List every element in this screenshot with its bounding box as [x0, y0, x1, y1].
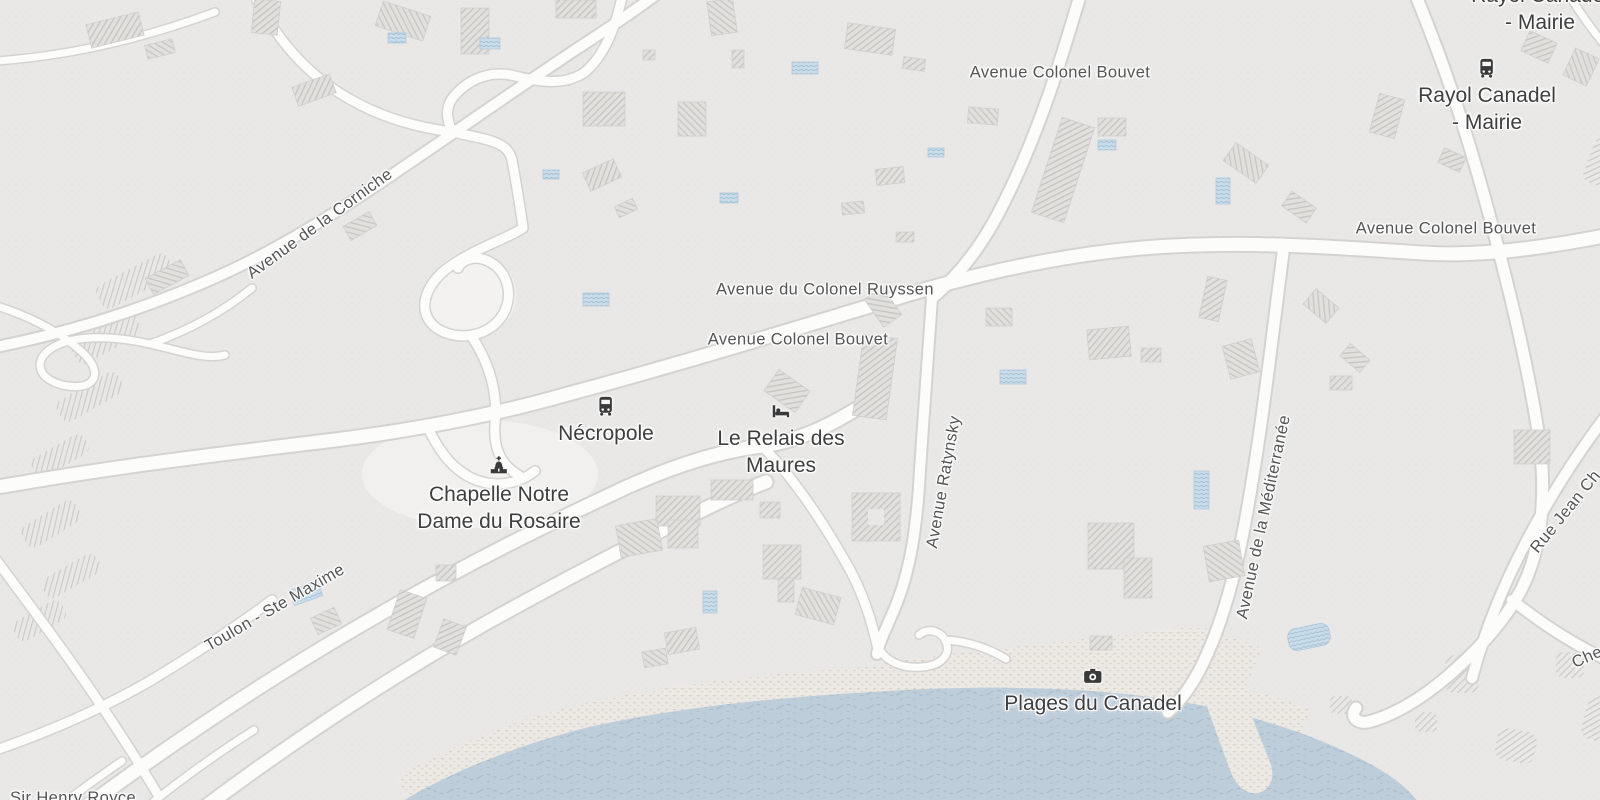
poi-label-line: Dame du Rosaire — [417, 508, 580, 535]
poi-label-line: Le Relais des — [717, 425, 844, 452]
camera-icon — [1082, 664, 1105, 688]
poi-label-line: Plages du Canadel — [1004, 690, 1181, 717]
poi-label-line: - Mairie — [1452, 109, 1522, 136]
poi-le-relais-des-maures[interactable]: Le Relais des Maures — [717, 399, 844, 479]
map-viewport[interactable]: Avenue Colonel Bouvet Avenue Colonel Bou… — [0, 0, 1600, 800]
poi-label-line: Rayol Canadel — [1418, 82, 1556, 109]
street-label-sir-henry-royce: Sir Henry Royce — [10, 789, 136, 800]
poi-label-line: - Mairie — [1505, 9, 1575, 36]
bus-icon — [594, 394, 617, 418]
poi-label-line: Maures — [746, 452, 816, 479]
street-label-avenue-du-colonel-ruyssen: Avenue du Colonel Ruyssen — [716, 281, 934, 300]
poi-label-line: Rayol Canadel — [1471, 0, 1600, 9]
poi-necropole-bus-stop[interactable]: Nécropole — [558, 394, 654, 447]
poi-label-line: Nécropole — [558, 420, 654, 447]
street-label-avenue-colonel-bouvet-top: Avenue Colonel Bouvet — [970, 64, 1151, 83]
poi-rayol-canadel-mairie-top[interactable]: Rayol Canadel - Mairie — [1471, 0, 1600, 36]
street-label-avenue-colonel-bouvet-right: Avenue Colonel Bouvet — [1356, 220, 1537, 239]
poi-chapelle-notre-dame-du-rosaire[interactable]: Chapelle Notre Dame du Rosaire — [417, 455, 580, 535]
lodging-icon — [770, 399, 793, 423]
street-label-avenue-colonel-bouvet-center: Avenue Colonel Bouvet — [708, 331, 889, 350]
poi-label-line: Chapelle Notre — [429, 481, 569, 508]
bus-icon — [1475, 56, 1498, 80]
poi-rayol-canadel-mairie-bus-stop[interactable]: Rayol Canadel - Mairie — [1418, 56, 1556, 136]
poi-plages-du-canadel[interactable]: Plages du Canadel — [1004, 664, 1181, 717]
chapel-icon — [488, 455, 511, 479]
